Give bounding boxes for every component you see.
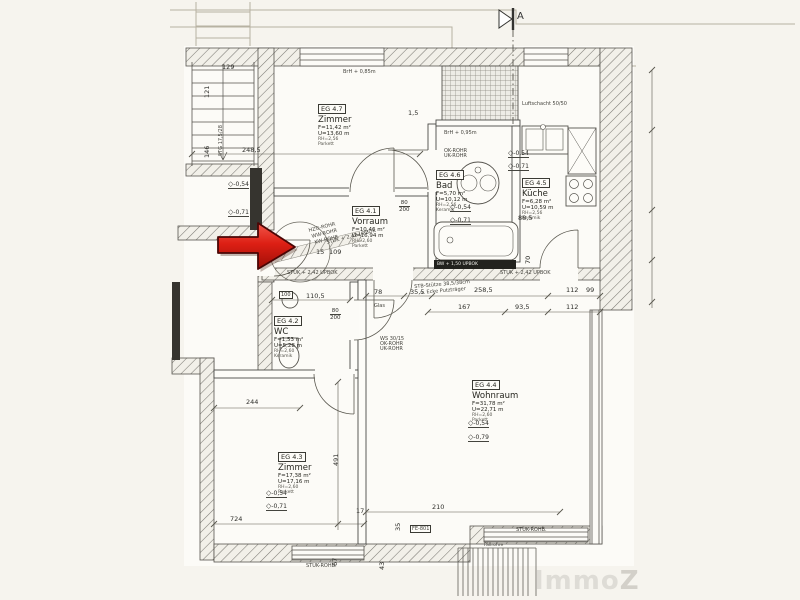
air-shaft-block <box>442 66 518 124</box>
room-name: Wohnraum <box>472 392 518 401</box>
door-size-label: 80200 <box>330 308 341 321</box>
dim-label: 100 <box>279 291 293 299</box>
door-width: 80 <box>401 200 408 206</box>
room-id: EG 4.5 <box>522 178 550 188</box>
level-marker: ◇-0,79 <box>468 434 489 442</box>
dim-label: 70 <box>524 256 532 264</box>
dim-label: 15 <box>316 248 324 256</box>
room-label-eg42: EG 4.2 WC F=1,53 m² U=5,28 m RH=2,60 Ker… <box>274 308 303 359</box>
room-name: Bad <box>436 182 468 191</box>
door-width: 80 <box>332 308 339 314</box>
level-value: -0,71 <box>513 163 529 170</box>
room-id: EG 4.3 <box>278 452 306 462</box>
room-label-eg47: EG 4.7 Zimmer F=11,42 m² U=13,60 m RH=2,… <box>318 96 351 147</box>
dim-label: 110,5 <box>306 292 325 300</box>
floorplan-canvas: EG 4.7 Zimmer F=11,42 m² U=13,60 m RH=2,… <box>0 0 800 600</box>
room-label-eg41: EG 4.1 Vorraum F=10,46 m² U=16,94 m RH=2… <box>352 198 388 249</box>
room-id: EG 4.1 <box>352 206 380 216</box>
annotation-label: Luftschacht 50/50 <box>522 101 567 107</box>
immoz-watermark: ImmoZ <box>534 566 640 596</box>
level-value: -0,54 <box>233 181 249 188</box>
door-height: 200 <box>330 314 341 321</box>
room-label-eg44: EG 4.4 Wohnraum F=31,78 m² U=22,71 m RH=… <box>472 372 518 423</box>
floorplan-drawing <box>0 0 800 600</box>
level-value: -0,54 <box>455 204 471 211</box>
section-letter: A <box>517 11 524 22</box>
dim-label: 210 <box>432 503 444 511</box>
level-marker: ◇-0,54 <box>266 490 287 498</box>
level-value: -0,71 <box>455 217 471 224</box>
level-marker: ◇-0,71 <box>266 503 287 511</box>
room-name: Küche <box>522 190 554 199</box>
dim-label: 88,5 <box>518 214 532 222</box>
room-id: EG 4.2 <box>274 316 302 326</box>
room-label-eg43: EG 4.3 Zimmer F=17,38 m² U=17,16 m RH=2,… <box>278 444 311 495</box>
annotation-label: Glas <box>374 303 385 309</box>
dim-label: 129 <box>222 63 234 71</box>
annotation-label: UK-ROHR <box>444 153 467 159</box>
dim-label: 109 <box>329 248 341 256</box>
annotation-label: FE-801 <box>410 525 431 533</box>
annotation-label: STUK + 2,42 UPBOK <box>287 270 338 276</box>
dim-label: 112 <box>566 286 578 294</box>
dim-label: 35 <box>394 523 402 531</box>
level-value: -0,54 <box>473 420 489 427</box>
room-floor: Parkett <box>352 244 388 249</box>
room-name: Zimmer <box>318 116 351 125</box>
room-floor: Keramik <box>274 354 303 359</box>
dim-label: 112 <box>566 303 578 311</box>
annotation-label: BrH + 0,85m <box>343 69 376 75</box>
annotation-label: BrH + 0,95m <box>444 130 477 136</box>
dim-label: 99 <box>586 286 594 294</box>
room-id: EG 4.4 <box>472 380 500 390</box>
door-height: 200 <box>399 206 410 213</box>
room-name: WC <box>274 328 303 337</box>
dim-label: 167 <box>458 303 470 311</box>
level-marker: ◇-0,54 <box>468 420 489 428</box>
level-marker: ◇-0,54 <box>450 204 471 212</box>
dim-label: 491 <box>332 454 340 466</box>
dim-label: 724 <box>230 515 242 523</box>
room-name: Vorraum <box>352 218 388 227</box>
dim-label: 248,5 <box>242 146 261 154</box>
bathtub <box>434 222 518 260</box>
level-value: -0,71 <box>233 209 249 216</box>
dim-label: 1,5 <box>408 109 418 117</box>
level-marker: ◇-0,54 <box>228 181 249 189</box>
level-marker: ◇-0,71 <box>508 163 529 171</box>
dim-label: 43 <box>378 562 386 570</box>
level-value: -0,71 <box>271 503 287 510</box>
dim-label: 146 <box>203 146 211 158</box>
level-value: -0,54 <box>513 150 529 157</box>
annotation-label: STUK-ROHB. <box>516 527 547 533</box>
room-floor: Parkett <box>318 142 351 147</box>
door-size-label: 80200 <box>399 200 410 213</box>
dim-label: 121 <box>203 86 211 98</box>
level-marker: ◇-0,71 <box>228 209 249 217</box>
annotation-label: BW + 1,50 UPBOK <box>437 262 478 267</box>
annotation-label: STG 17,5/28 <box>218 125 224 156</box>
room-id: EG 4.7 <box>318 104 346 114</box>
watermark-z: Z <box>620 566 640 596</box>
annotation-label: Fallrohre <box>484 543 503 548</box>
dim-label: 258,5 <box>474 286 493 294</box>
dim-label: 244 <box>246 398 258 406</box>
annotation-label: STUK-ROHB. <box>306 563 337 569</box>
dim-label: 17 <box>356 507 364 515</box>
level-marker: ◇-0,71 <box>450 217 471 225</box>
room-name: Zimmer <box>278 464 311 473</box>
watermark-immo: Immo <box>534 566 620 596</box>
dim-label: 78 <box>374 288 382 296</box>
annotation-label: UK-ROHR <box>380 346 403 352</box>
dim-label: 93,5 <box>515 303 529 311</box>
annotation-label: STUK + 2,42 UPBOK <box>500 270 551 276</box>
level-marker: ◇-0,54 <box>508 150 529 158</box>
level-value: -0,79 <box>473 434 489 441</box>
level-value: -0,54 <box>271 490 287 497</box>
room-id: EG 4.6 <box>436 170 464 180</box>
